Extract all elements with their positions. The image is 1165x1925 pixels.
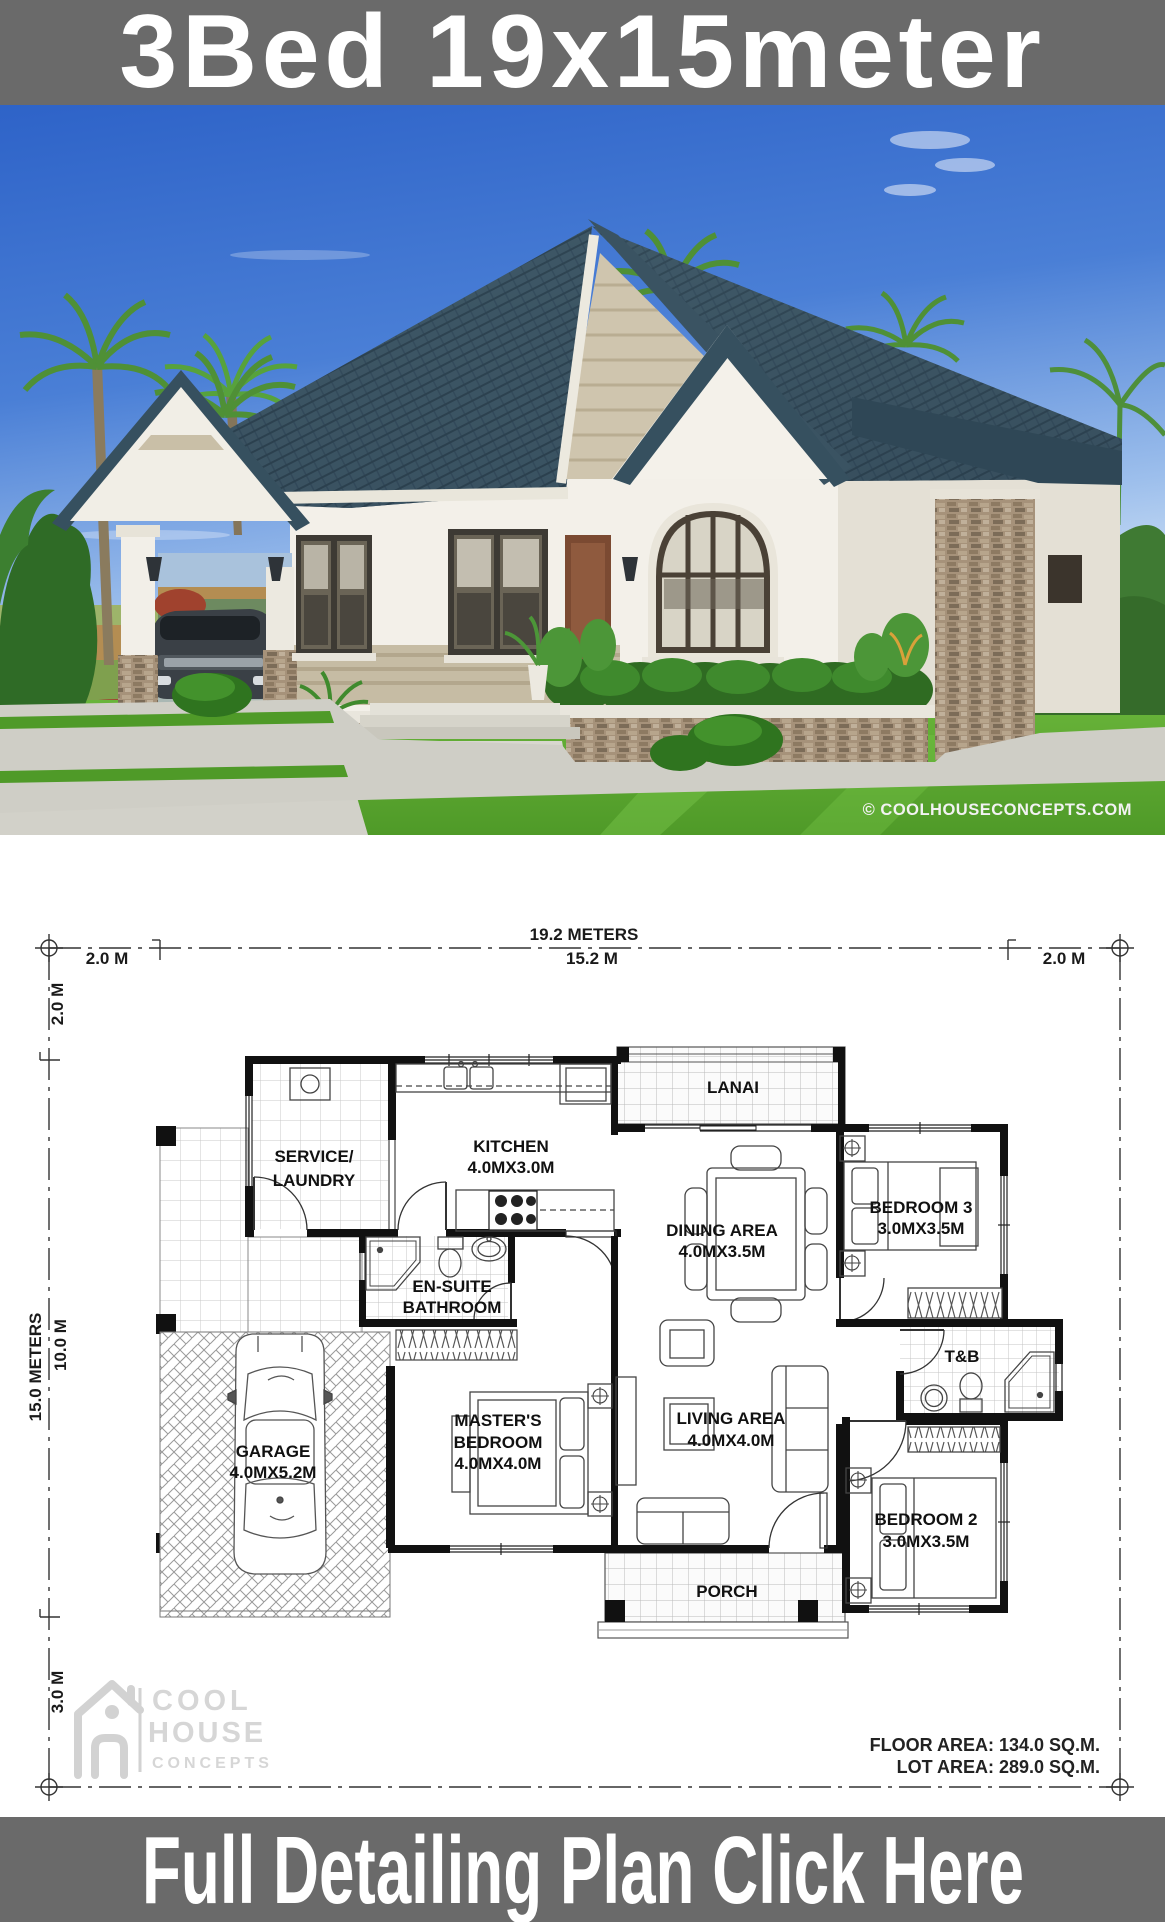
svg-text:4.0MX3.5M: 4.0MX3.5M [679, 1242, 766, 1261]
svg-text:4.0MX4.0M: 4.0MX4.0M [688, 1431, 775, 1450]
svg-text:DINING AREA: DINING AREA [666, 1221, 778, 1240]
svg-text:15.0 METERS: 15.0 METERS [26, 1313, 45, 1422]
svg-text:COOL: COOL [152, 1685, 252, 1717]
svg-text:© COOLHOUSECONCEPTS.COM: © COOLHOUSECONCEPTS.COM [863, 801, 1132, 819]
svg-text:15.2 M: 15.2 M [566, 949, 618, 968]
svg-text:T&B: T&B [945, 1347, 980, 1366]
svg-text:LAUNDRY: LAUNDRY [273, 1171, 356, 1190]
svg-text:EN-SUITE: EN-SUITE [412, 1277, 491, 1296]
svg-text:19.2 METERS: 19.2 METERS [530, 925, 639, 944]
svg-text:SERVICE/: SERVICE/ [274, 1147, 353, 1166]
svg-text:CONCEPTS: CONCEPTS [152, 1755, 273, 1772]
svg-text:2.0 M: 2.0 M [1043, 949, 1086, 968]
svg-text:3.0MX3.5M: 3.0MX3.5M [878, 1219, 965, 1238]
svg-text:2.0 M: 2.0 M [86, 949, 129, 968]
svg-text:BEDROOM 2: BEDROOM 2 [875, 1510, 978, 1529]
svg-text:2.0 M: 2.0 M [48, 983, 67, 1026]
svg-text:HOUSE: HOUSE [148, 1717, 266, 1749]
svg-text:4.0MX4.0M: 4.0MX4.0M [455, 1454, 542, 1473]
svg-text:LOT AREA: 289.0 SQ.M.: LOT AREA: 289.0 SQ.M. [897, 1757, 1100, 1777]
svg-text:BEDROOM: BEDROOM [454, 1433, 543, 1452]
svg-text:PORCH: PORCH [696, 1582, 757, 1601]
svg-text:3.0MX3.5M: 3.0MX3.5M [883, 1532, 970, 1551]
svg-text:LIVING AREA: LIVING AREA [677, 1409, 786, 1428]
svg-text:LANAI: LANAI [707, 1078, 759, 1097]
svg-text:KITCHEN: KITCHEN [473, 1137, 549, 1156]
svg-text:FLOOR AREA: 134.0 SQ.M.: FLOOR AREA: 134.0 SQ.M. [870, 1735, 1100, 1755]
svg-text:GARAGE: GARAGE [236, 1442, 311, 1461]
svg-text:3.0 M: 3.0 M [48, 1671, 67, 1714]
svg-text:BEDROOM 3: BEDROOM 3 [870, 1198, 973, 1217]
svg-text:10.0 M: 10.0 M [51, 1319, 70, 1371]
svg-text:MASTER'S: MASTER'S [454, 1411, 541, 1430]
svg-text:4.0MX5.2M: 4.0MX5.2M [230, 1463, 317, 1482]
svg-text:4.0MX3.0M: 4.0MX3.0M [468, 1158, 555, 1177]
svg-text:BATHROOM: BATHROOM [403, 1298, 502, 1317]
